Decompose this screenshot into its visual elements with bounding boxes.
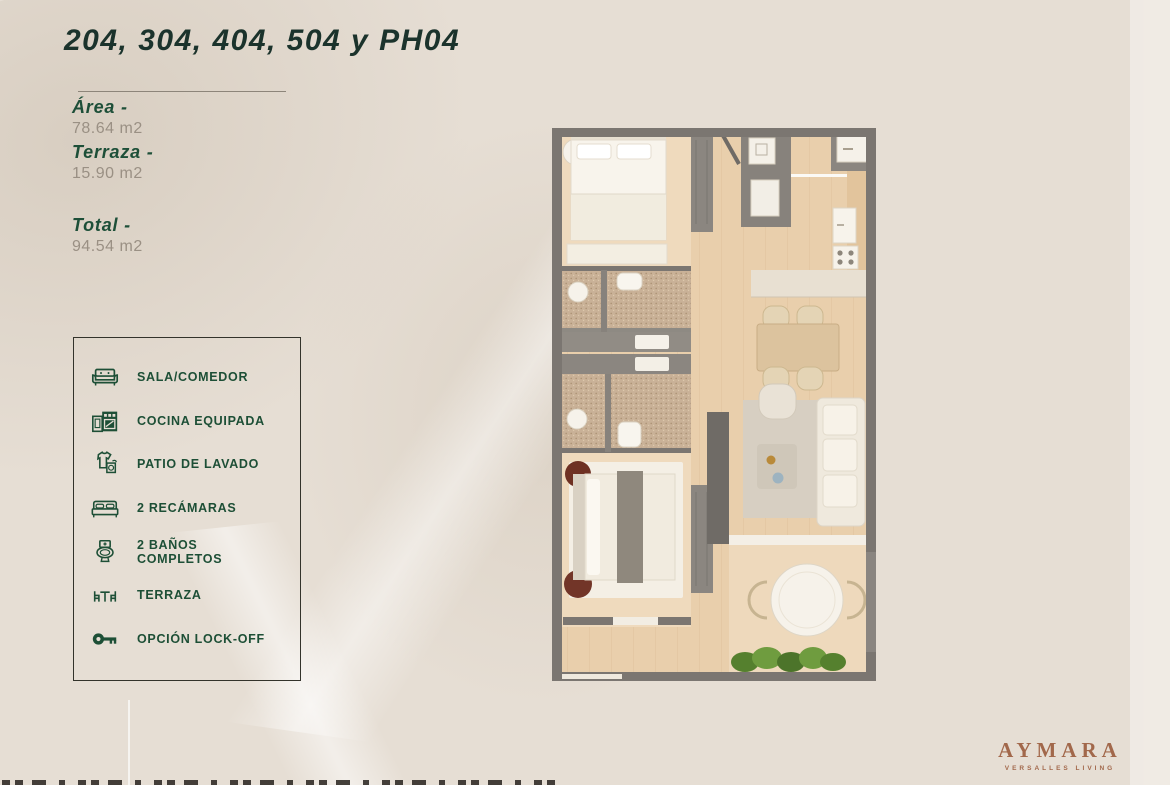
key-icon [90, 624, 120, 654]
bed-icon [90, 493, 120, 523]
spec-value: 78.64 m2 [72, 118, 292, 139]
toilet-icon [90, 537, 120, 567]
terrace-sill [729, 535, 873, 545]
legend-label: PATIO DE LAVADO [137, 457, 259, 471]
living-room [743, 384, 865, 526]
legend-item-terraza: TERRAZA [90, 580, 286, 610]
bathrooms [559, 266, 691, 453]
spec-value: 15.90 m2 [72, 163, 292, 184]
legend-item-lock-off: OPCIÓN LOCK-OFF [90, 624, 286, 654]
spec-area: Área - 78.64 m2 [72, 96, 292, 139]
laundry-icon [90, 449, 120, 479]
spec-label: Terraza - [72, 141, 292, 163]
legend-item-banos: 2 BAÑOS COMPLETOS [90, 537, 286, 567]
legend-label: COCINA EQUIPADA [137, 414, 265, 428]
interior-wall [707, 412, 729, 544]
legend-label: 2 BAÑOS COMPLETOS [137, 538, 286, 566]
clipped-bottom-text [2, 780, 562, 785]
legend-label: 2 RECÁMARAS [137, 501, 236, 515]
brand-tagline: VERSALLES LIVING [990, 765, 1130, 772]
title-underline [78, 91, 286, 92]
legend-label: TERRAZA [137, 588, 202, 602]
terrace [729, 545, 873, 675]
spec-total: Total - 94.54 m2 [72, 214, 292, 257]
spec-label: Área - [72, 96, 292, 118]
sofa-icon [90, 362, 120, 392]
spec-terraza: Terraza - 15.90 m2 [72, 141, 292, 184]
brand-name: AYMARA [990, 738, 1130, 763]
floorplan-image [545, 122, 880, 690]
brand-logo: AYMARA VERSALLES LIVING [990, 738, 1130, 772]
wardrobe [691, 132, 713, 232]
amenities-legend: SALA/COMEDOR COCINA EQUIPADA [73, 337, 301, 681]
kitchen-icon [90, 406, 120, 436]
terrace-icon [90, 580, 120, 610]
bedroom-2 [559, 453, 713, 627]
spec-label: Total - [72, 214, 292, 236]
brochure-page: 204, 304, 404, 504 y PH04 Área - 78.64 m… [0, 0, 1170, 785]
spec-value: 94.54 m2 [72, 236, 292, 257]
watermark-streak [128, 700, 130, 785]
legend-item-patio-lavado: PATIO DE LAVADO [90, 449, 286, 479]
page-title: 204, 304, 404, 504 y PH04 [64, 24, 460, 58]
bedroom-1 [559, 134, 691, 270]
legend-item-cocina: COCINA EQUIPADA [90, 406, 286, 436]
legend-item-recamaras: 2 RECÁMARAS [90, 493, 286, 523]
page-edge-seam [1130, 0, 1170, 785]
legend-label: OPCIÓN LOCK-OFF [137, 632, 265, 646]
legend-label: SALA/COMEDOR [137, 370, 248, 384]
legend-item-sala-comedor: SALA/COMEDOR [90, 362, 286, 392]
area-specs: Área - 78.64 m2 Terraza - 15.90 m2 Total… [72, 96, 292, 259]
